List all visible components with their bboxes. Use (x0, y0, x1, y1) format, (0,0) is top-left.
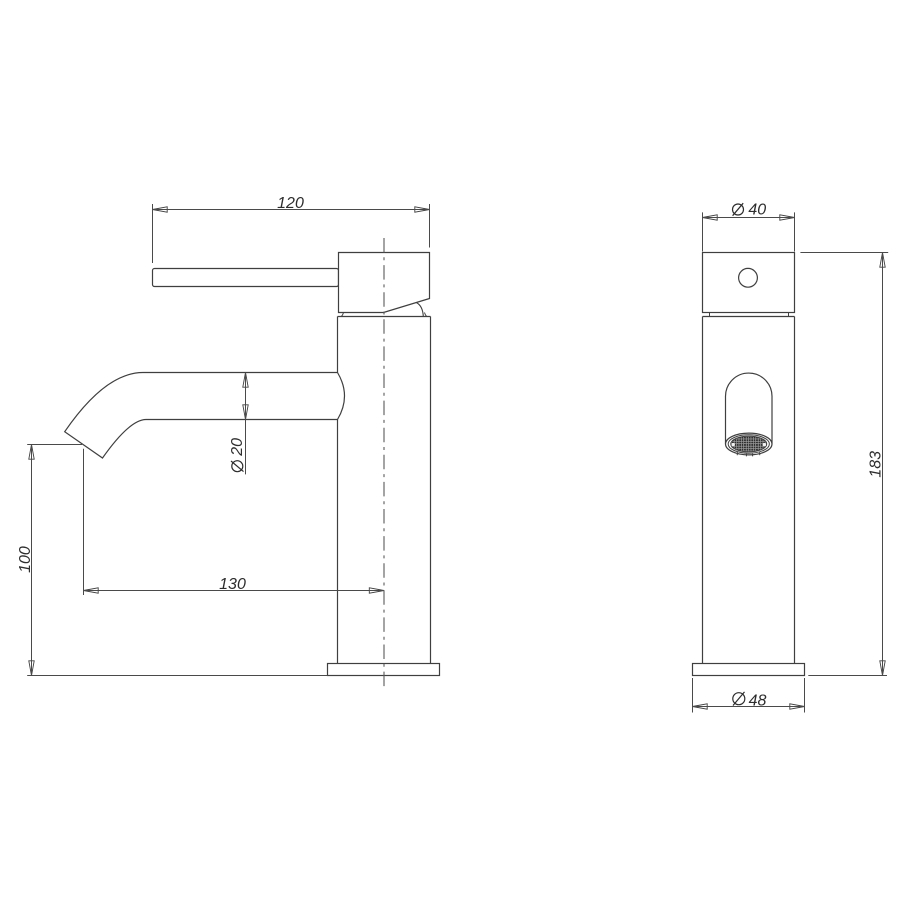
svg-text:40: 40 (748, 202, 766, 219)
svg-text:100: 100 (17, 546, 34, 573)
svg-text:183: 183 (867, 451, 884, 478)
svg-text:130: 130 (219, 576, 246, 593)
svg-text:48: 48 (749, 692, 767, 709)
svg-text:120: 120 (277, 195, 304, 212)
svg-text:20: 20 (229, 438, 246, 457)
